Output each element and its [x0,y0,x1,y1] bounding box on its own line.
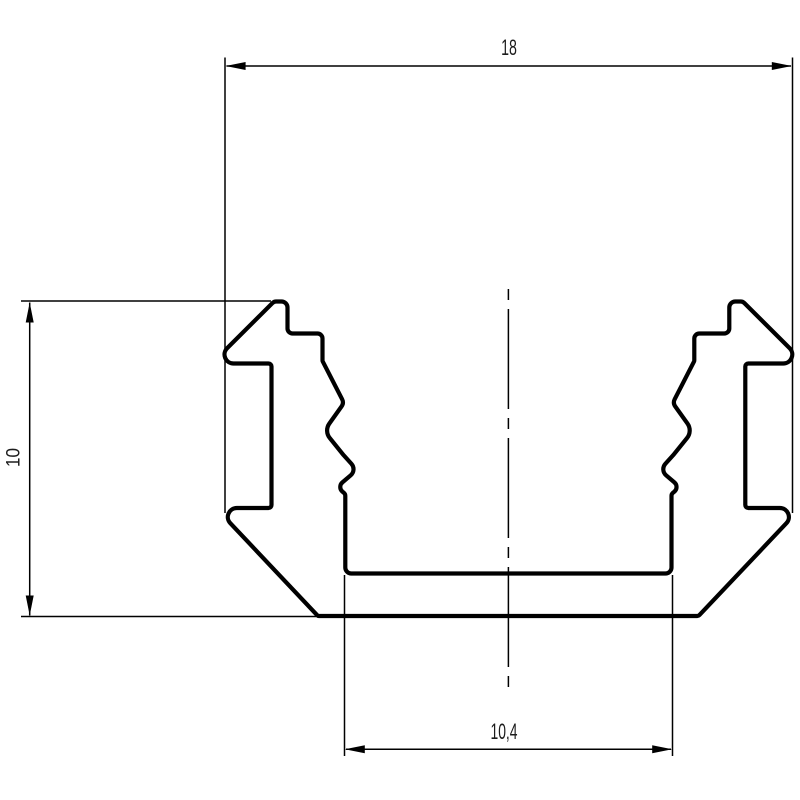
svg-text:10,4: 10,4 [491,719,518,744]
svg-text:10: 10 [3,448,25,467]
svg-text:18: 18 [501,35,517,60]
